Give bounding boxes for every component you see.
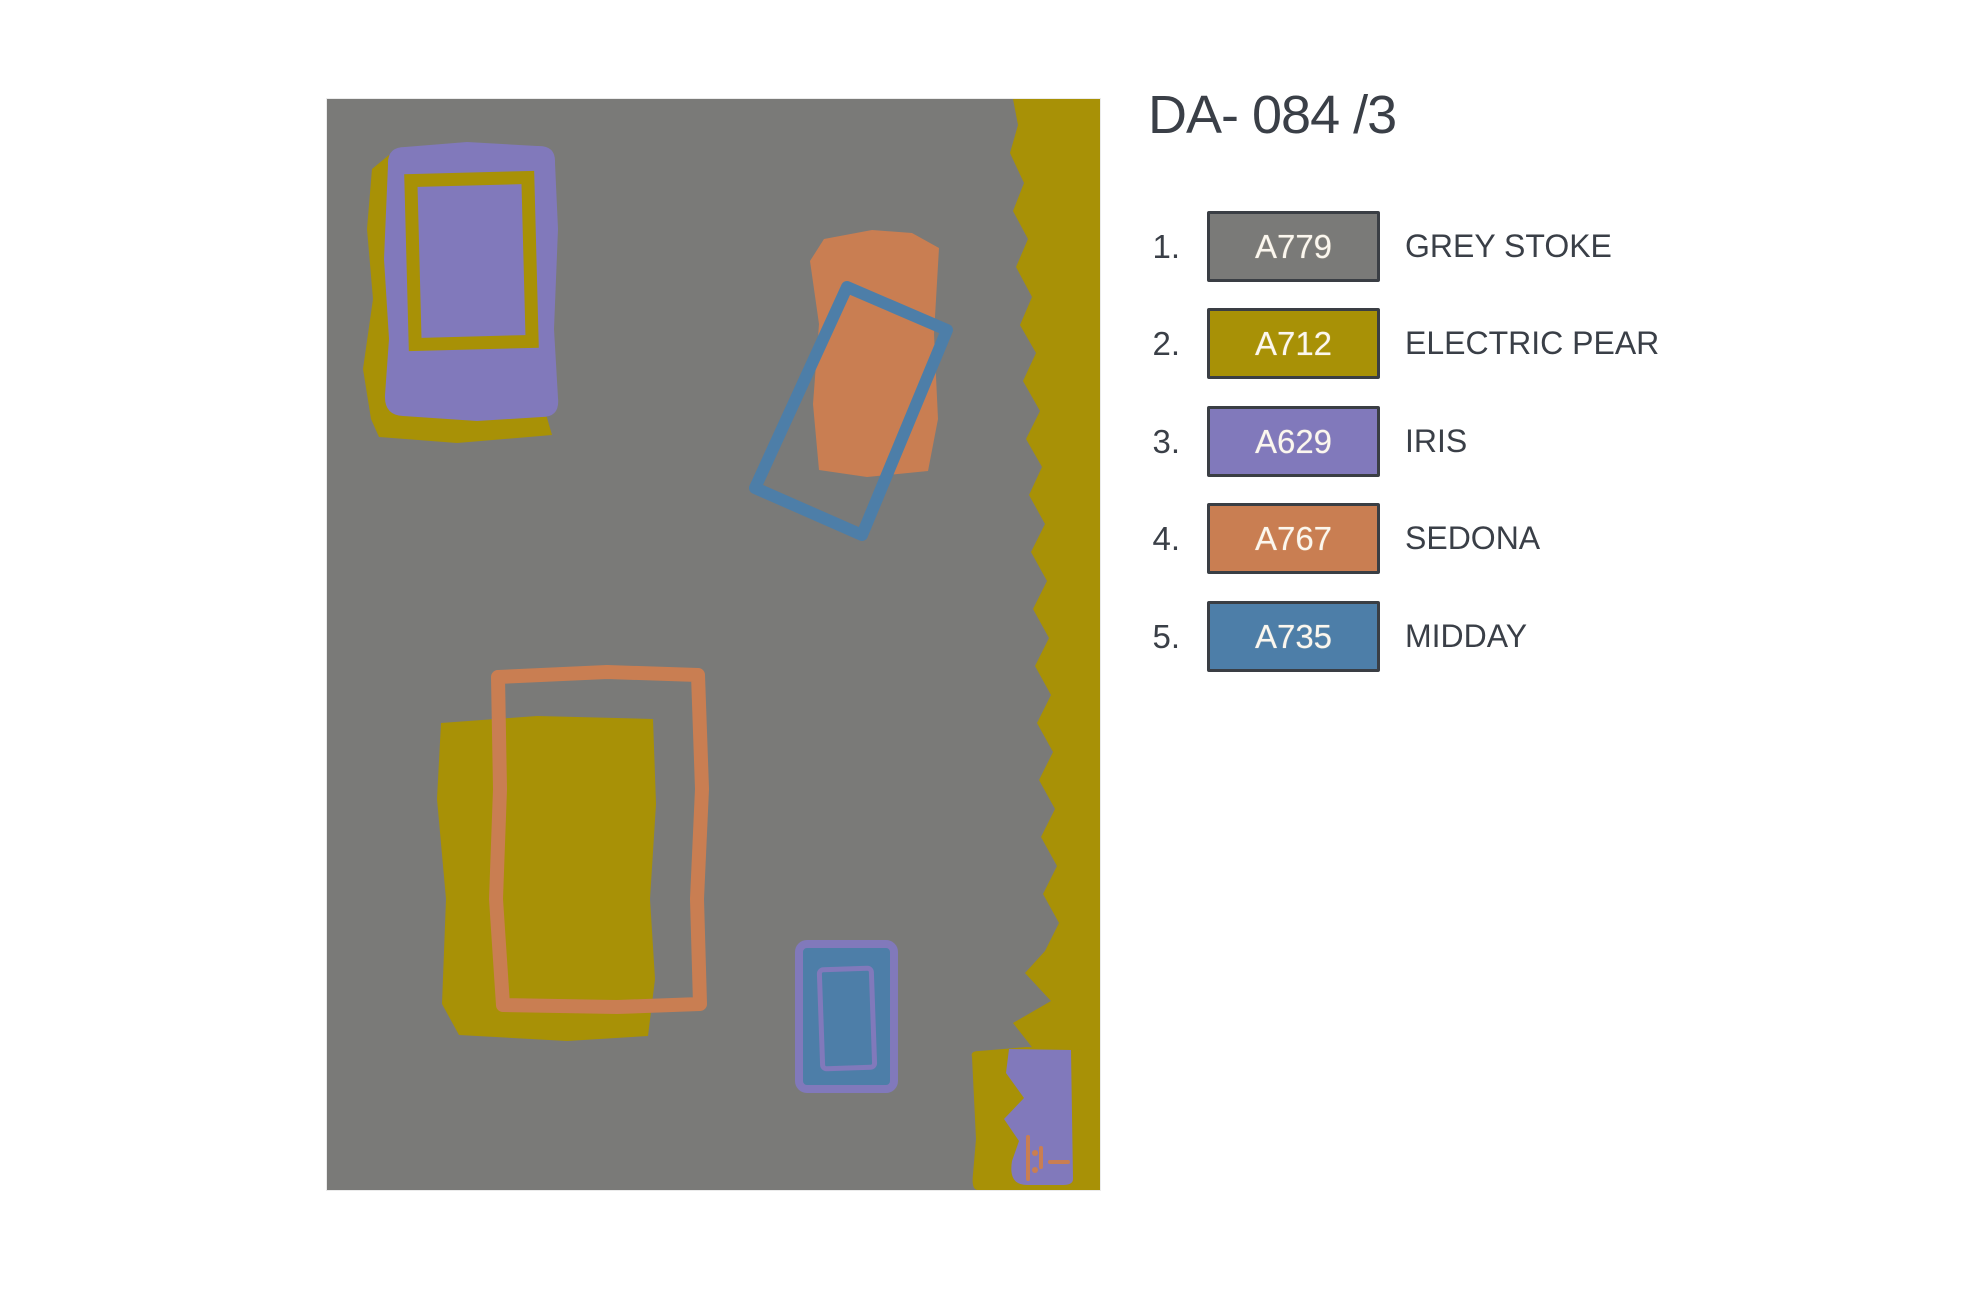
legend-item-number: 3. bbox=[1100, 406, 1180, 477]
color-name: GREY STOKE bbox=[1405, 211, 1612, 282]
color-code: A712 bbox=[1255, 325, 1332, 363]
color-swatch: A779 bbox=[1207, 211, 1380, 282]
design-code-title: DA- 084 /3 bbox=[1148, 84, 1396, 146]
artwork-mark-dot bbox=[1032, 1167, 1038, 1173]
color-name: MIDDAY bbox=[1405, 601, 1527, 672]
legend-row: 5. A735 MIDDAY bbox=[0, 601, 1968, 672]
color-code: A735 bbox=[1255, 618, 1332, 656]
color-swatch: A735 bbox=[1207, 601, 1380, 672]
color-code: A767 bbox=[1255, 520, 1332, 558]
color-swatch: A629 bbox=[1207, 406, 1380, 477]
legend-item-number: 5. bbox=[1100, 601, 1180, 672]
color-code: A779 bbox=[1255, 228, 1332, 266]
artwork-mark-dot bbox=[1032, 1150, 1038, 1156]
legend-row: 2. A712 ELECTRIC PEAR bbox=[0, 308, 1968, 379]
legend-row: 1. A779 GREY STOKE bbox=[0, 211, 1968, 282]
color-name: SEDONA bbox=[1405, 503, 1540, 574]
color-swatch: A767 bbox=[1207, 503, 1380, 574]
artwork-bottom-purple-blob bbox=[1004, 1049, 1073, 1185]
palette-spec-page: DA- 084 /3 1. A779 GREY STOKE 2. A712 EL… bbox=[0, 0, 1968, 1312]
color-name: ELECTRIC PEAR bbox=[1405, 308, 1659, 379]
color-swatch: A712 bbox=[1207, 308, 1380, 379]
legend-row: 4. A767 SEDONA bbox=[0, 503, 1968, 574]
legend-item-number: 4. bbox=[1100, 503, 1180, 574]
legend-item-number: 2. bbox=[1100, 308, 1180, 379]
legend-item-number: 1. bbox=[1100, 211, 1180, 282]
legend-row: 3. A629 IRIS bbox=[0, 406, 1968, 477]
artwork-big-olive-rect bbox=[437, 716, 656, 1041]
color-code: A629 bbox=[1255, 423, 1332, 461]
color-name: IRIS bbox=[1405, 406, 1467, 477]
